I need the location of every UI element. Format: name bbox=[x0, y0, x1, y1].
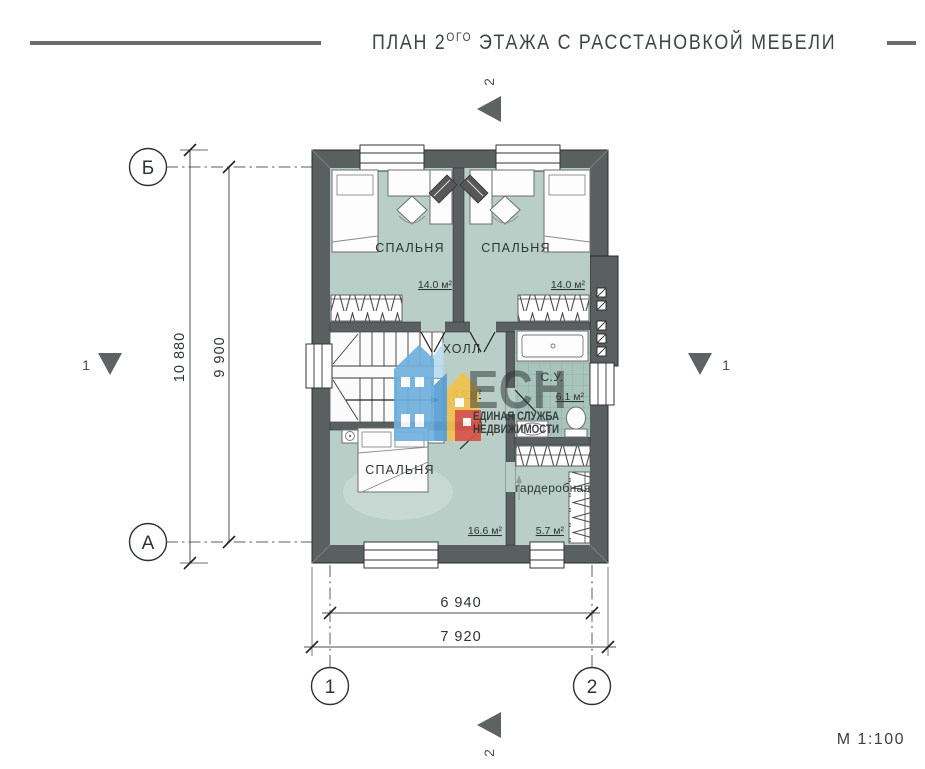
bed bbox=[544, 170, 590, 252]
dim-inner-width: 6 940 bbox=[440, 595, 481, 611]
door-opening-wardrobe bbox=[506, 462, 515, 492]
label-hall: ХОЛЛ bbox=[443, 342, 482, 356]
wall-between-top-bedrooms bbox=[453, 168, 464, 322]
bed bbox=[332, 170, 378, 252]
label-bedroom-bottom: СПАЛЬНЯ bbox=[365, 463, 434, 477]
window-left bbox=[306, 344, 332, 388]
label-bedroom-tl: СПАЛЬНЯ bbox=[375, 241, 444, 255]
dim-total-height: 10 880 bbox=[172, 332, 188, 382]
window-top-right bbox=[496, 145, 560, 171]
section-arrow-right bbox=[688, 353, 712, 375]
label-wardrobe: гардеробная bbox=[515, 481, 590, 495]
area-wardrobe: 5.7 м² bbox=[536, 525, 565, 537]
axis-label-2: 2 bbox=[587, 677, 598, 698]
section-arrow-top bbox=[477, 96, 501, 122]
window-right bbox=[590, 363, 614, 405]
building: СПАЛЬНЯ 14.0 м² СПАЛЬНЯ 14.0 м² ХОЛЛ 4.0… bbox=[306, 145, 618, 568]
floor-plan-page: ПЛАН 2ОГО ЭТАЖА С РАССТАНОВКОЙ МЕБЕЛИ bbox=[0, 0, 925, 769]
area-bedroom-tl: 14.0 м² bbox=[418, 279, 453, 291]
dim-inner-height: 9 900 bbox=[212, 336, 228, 377]
area-bedroom-bottom: 16.6 м² bbox=[468, 525, 503, 537]
window-bottom-left bbox=[364, 542, 438, 568]
scale-label: М 1:100 bbox=[837, 731, 905, 748]
floor-plan-drawing: Б А 1 2 10 880 9 900 bbox=[0, 0, 925, 769]
bathtub bbox=[517, 331, 588, 361]
area-bedroom-tr: 14.0 м² bbox=[551, 279, 586, 291]
section-arrow-left bbox=[98, 353, 122, 375]
hanging-rack-top bbox=[516, 446, 590, 466]
section-label-top: 2 bbox=[481, 78, 497, 86]
axis-label-1: 1 bbox=[325, 677, 336, 698]
watermark-tagline-2: НЕДВИЖИМОСТИ bbox=[473, 422, 559, 436]
wall-bath-wardrobe bbox=[515, 437, 590, 445]
label-bedroom-tr: СПАЛЬНЯ bbox=[481, 241, 550, 255]
closet bbox=[331, 295, 402, 321]
section-label-right: 1 bbox=[722, 357, 730, 373]
toilet bbox=[565, 407, 587, 437]
window-top-left bbox=[360, 145, 424, 171]
dimension-left: 10 880 9 900 bbox=[172, 144, 235, 569]
section-arrow-bottom bbox=[477, 712, 501, 738]
closet bbox=[518, 295, 589, 321]
dimension-bottom: 6 940 7 920 bbox=[304, 567, 616, 656]
axis-label-A: А bbox=[142, 533, 155, 554]
window-bottom-right bbox=[530, 542, 564, 568]
door-opening-bedroom-tl bbox=[421, 321, 445, 333]
dim-total-width: 7 920 bbox=[440, 629, 481, 645]
watermark-tagline-1: ЕДИНАЯ СЛУЖБА bbox=[473, 409, 559, 423]
section-label-left: 1 bbox=[82, 357, 90, 373]
axis-label-B: Б bbox=[142, 158, 154, 179]
door-opening-bedroom-tr bbox=[470, 321, 496, 333]
section-label-bottom: 2 bbox=[481, 749, 497, 757]
logo-house-blue-dark bbox=[434, 373, 447, 441]
